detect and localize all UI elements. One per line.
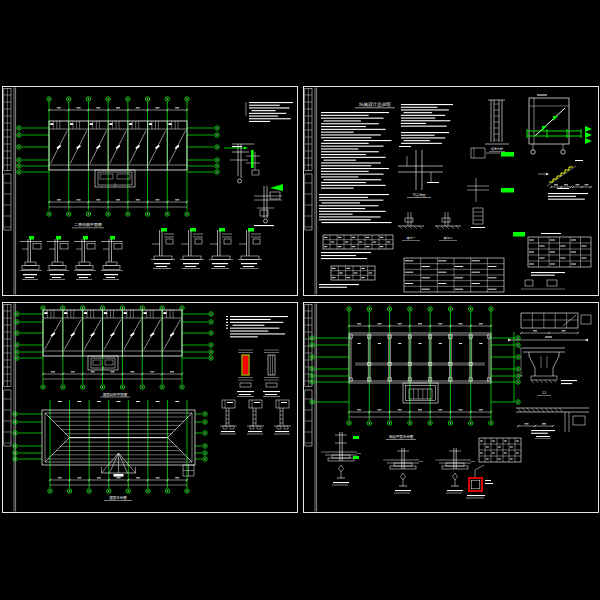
foundation-sections <box>321 432 475 493</box>
floor-plan <box>49 121 187 187</box>
cad-viewport: 二层结构平面图结构设计总说明节点详图做法一做法二墙身大样屋面结构平面图屋面布置图… <box>0 0 600 600</box>
base-detail-a: 做法一 <box>398 212 424 241</box>
ladder-detail <box>471 208 485 228</box>
beam-column-joint-detail: 节点详图 <box>398 146 443 198</box>
sheet-bottom-right: 基础平面布置图J-1 <box>304 303 599 513</box>
drawing-title: 节点详图 <box>413 193 426 197</box>
highlighted-column-detail <box>237 350 254 397</box>
sheet-top-left: 二层结构平面图 <box>3 87 298 296</box>
column-detail-white <box>263 350 280 397</box>
table-main <box>404 258 504 292</box>
column-details-row <box>20 228 262 280</box>
drawing-title: 二层结构平面图 <box>74 222 102 228</box>
roof-plan <box>42 410 195 477</box>
upper-floor-plan <box>43 310 182 370</box>
wall-section-detail: 墙身大样 <box>485 100 509 152</box>
wall-footing-detail <box>516 408 589 439</box>
notes-block <box>226 316 288 337</box>
base-detail-b: 做法二 <box>435 212 461 241</box>
drawing-title: 屋面结构平面图 <box>103 392 128 397</box>
stair-dims <box>548 184 592 199</box>
notes-block <box>232 102 293 147</box>
drawing-title: 基础平面布置图 <box>389 434 414 439</box>
drawing-title: 做法二 <box>444 236 453 240</box>
section-mark-detail-2 <box>467 178 514 202</box>
drawing-title: 结构设计总说明 <box>359 101 391 108</box>
axis-grid <box>17 97 219 216</box>
drawing-title: 屋面布置图 <box>109 495 127 500</box>
sheet-top-right: 结构设计总说明节点详图做法一做法二墙身大样 <box>304 87 599 296</box>
drawing-title: 做法一 <box>407 236 416 240</box>
foundation-plan <box>349 333 491 403</box>
beam-details-row <box>220 400 291 434</box>
column-joint-detail-a <box>224 144 260 183</box>
table-right <box>528 233 591 267</box>
beam-plan-detail <box>520 313 591 334</box>
drawing-canvas: 二层结构平面图结构设计总说明节点详图做法一做法二墙身大样屋面结构平面图屋面布置图… <box>0 0 600 600</box>
drawing-title: J-1 <box>542 391 546 395</box>
axis-grid-upper <box>15 306 213 389</box>
green-arrow-cluster <box>585 126 592 144</box>
highlighted-column-section <box>466 465 493 498</box>
sheet-bottom-left: 屋面结构平面图屋面布置图 <box>3 303 298 513</box>
footing-section-detail: J-1 <box>519 348 577 396</box>
schedule-table <box>479 438 521 462</box>
axis-grid <box>310 307 520 425</box>
table-2 <box>331 266 375 280</box>
drawing-title: 墙身大样 <box>490 147 503 151</box>
notes-column-1 <box>319 112 392 223</box>
table-1 <box>323 235 393 249</box>
column-joint-detail-b <box>254 184 283 226</box>
notes-column-2 <box>401 104 453 144</box>
stair-section-detail <box>527 95 581 155</box>
grid-symbol <box>183 465 194 476</box>
